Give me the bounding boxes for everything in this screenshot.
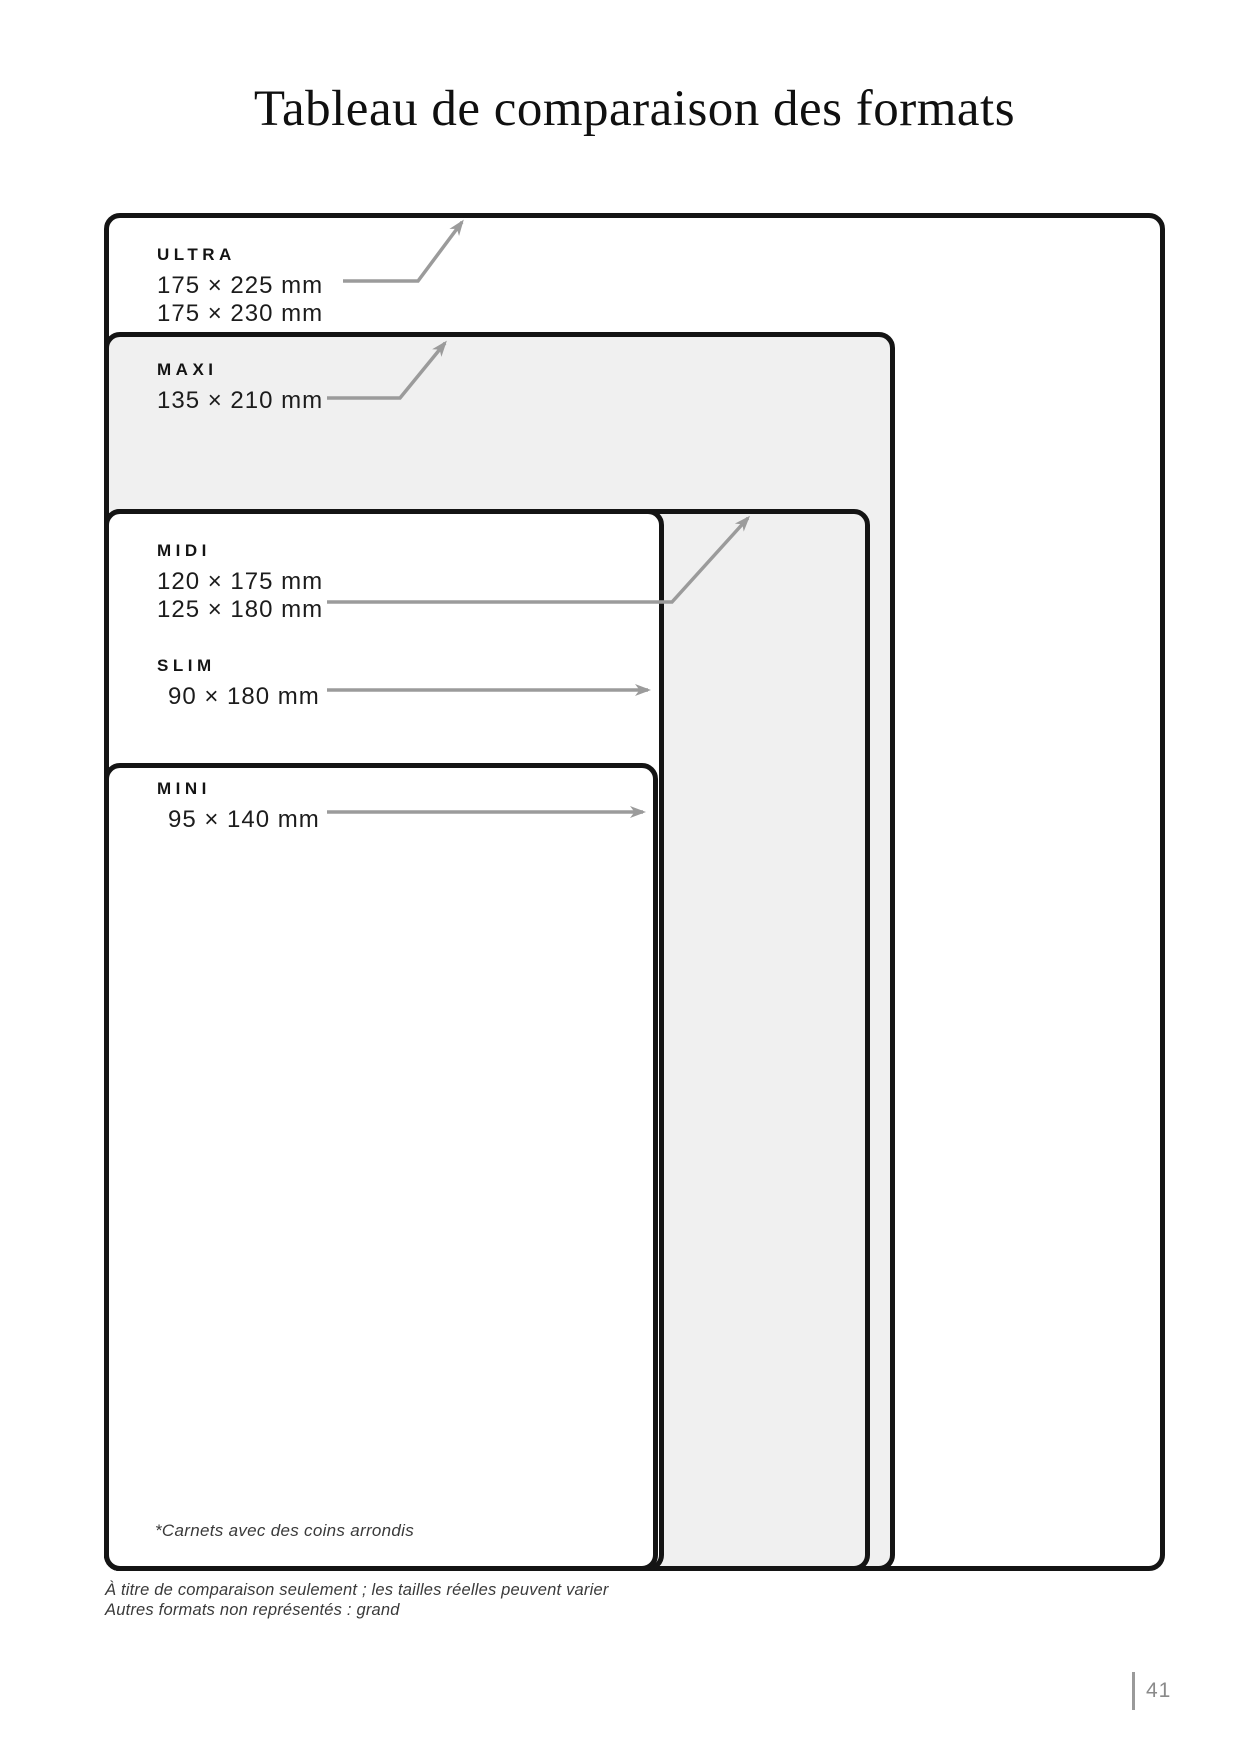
format-label-ultra: ULTRA 175 × 225 mm 175 × 230 mm <box>157 245 323 328</box>
page-title: Tableau de comparaison des formats <box>104 80 1165 138</box>
format-dimension: 90 × 180 mm <box>157 683 320 711</box>
page-number-block: 41 <box>1132 1672 1171 1710</box>
format-dimension: 120 × 175 mm <box>157 568 323 596</box>
footnote-rounded-corners: *Carnets avec des coins arrondis <box>155 1521 414 1541</box>
footnote-disclaimer: À titre de comparaison seulement ; les t… <box>105 1580 609 1620</box>
catalog-page: Tableau de comparaison des formats ULTRA… <box>0 0 1240 1754</box>
format-name: ULTRA <box>157 245 323 265</box>
page-number-rule <box>1132 1672 1135 1710</box>
format-dimension: 135 × 210 mm <box>157 387 323 415</box>
format-dimension: 125 × 180 mm <box>157 596 323 624</box>
format-dimension: 95 × 140 mm <box>157 806 320 834</box>
format-name: MIDI <box>157 541 323 561</box>
format-box-mini <box>104 763 658 1571</box>
footnote-line-1: À titre de comparaison seulement ; les t… <box>105 1580 609 1600</box>
footnote-line-2: Autres formats non représentés : grand <box>105 1600 609 1620</box>
format-name: SLIM <box>157 656 320 676</box>
format-label-midi: MIDI 120 × 175 mm 125 × 180 mm <box>157 541 323 624</box>
format-name: MAXI <box>157 360 323 380</box>
page-number: 41 <box>1146 1679 1171 1703</box>
format-name: MINI <box>157 779 320 799</box>
format-label-maxi: MAXI 135 × 210 mm <box>157 360 323 415</box>
format-label-mini: MINI 95 × 140 mm <box>157 779 320 834</box>
format-dimension: 175 × 225 mm <box>157 272 323 300</box>
format-label-slim: SLIM 90 × 180 mm <box>157 656 320 711</box>
format-dimension: 175 × 230 mm <box>157 300 323 328</box>
